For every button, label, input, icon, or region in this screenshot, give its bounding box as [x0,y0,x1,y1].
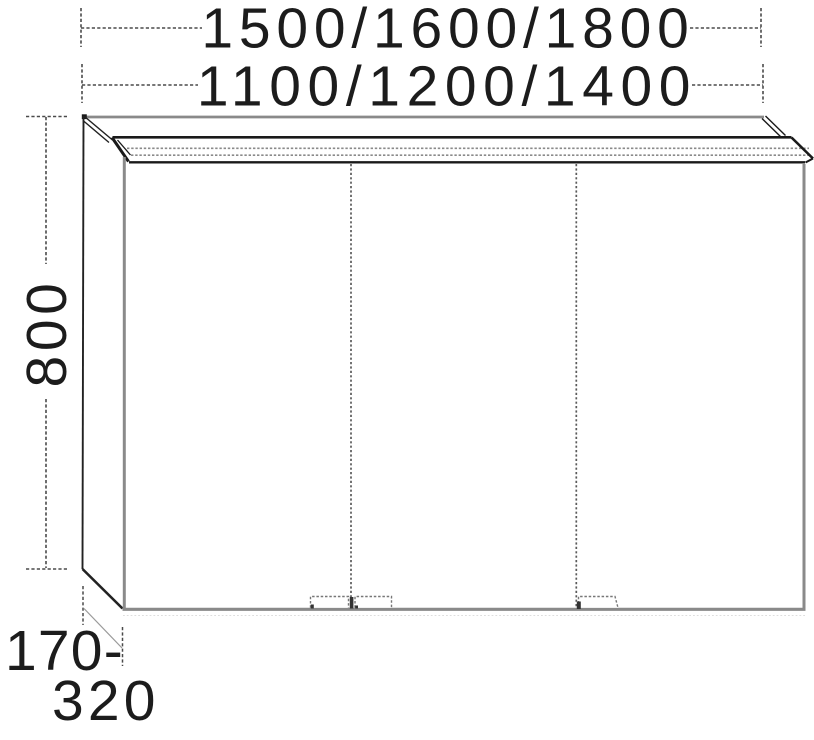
svg-text:1500/1600/1800: 1500/1600/1800 [201,0,694,61]
svg-text:1100/1200/1400: 1100/1200/1400 [197,55,697,119]
svg-text:320: 320 [52,669,160,733]
svg-text:800: 800 [15,279,79,388]
